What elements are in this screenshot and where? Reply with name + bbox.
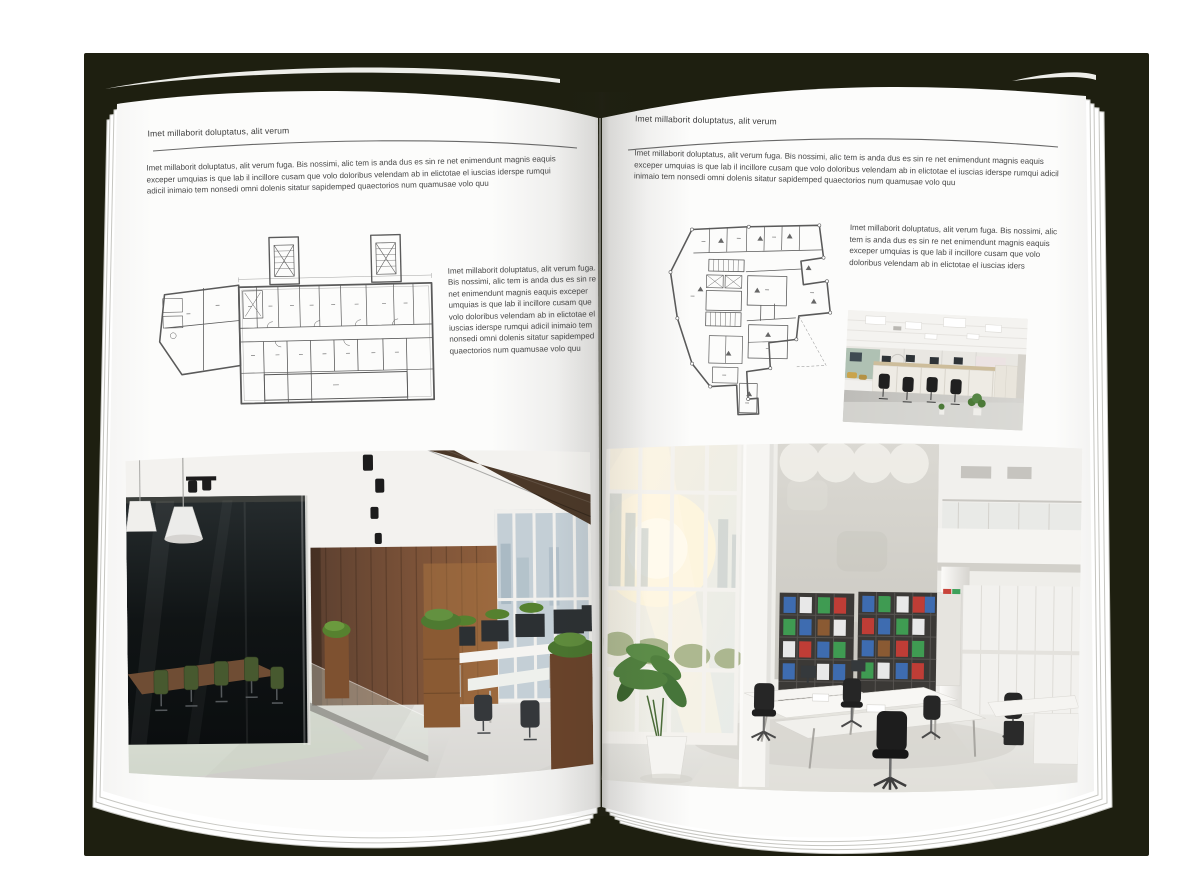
intro-paragraph: Imet millaborit doluptatus, alit verum f… (634, 147, 1063, 191)
floorplan-caption: Imet millaborit doluptatus, alit verum f… (849, 222, 1062, 273)
plan-columns (666, 221, 833, 403)
plan-door-symbols (695, 232, 818, 398)
right-page: Imet millaborit doluptatus, alit verum I… (0, 0, 1200, 891)
wall-sign-red (943, 589, 951, 594)
office-photo-right (601, 437, 1082, 802)
page-title: Imet millaborit doluptatus, alit verum (635, 113, 955, 130)
waste-bin (1004, 721, 1025, 745)
office-photo-small (843, 310, 1028, 431)
open-magazine-mockup: Imet millaborit doluptatus, alit verum I… (0, 0, 1200, 891)
floor-plan-right (649, 216, 839, 418)
exit-sign (952, 589, 960, 594)
plan-room-labels (688, 235, 815, 404)
